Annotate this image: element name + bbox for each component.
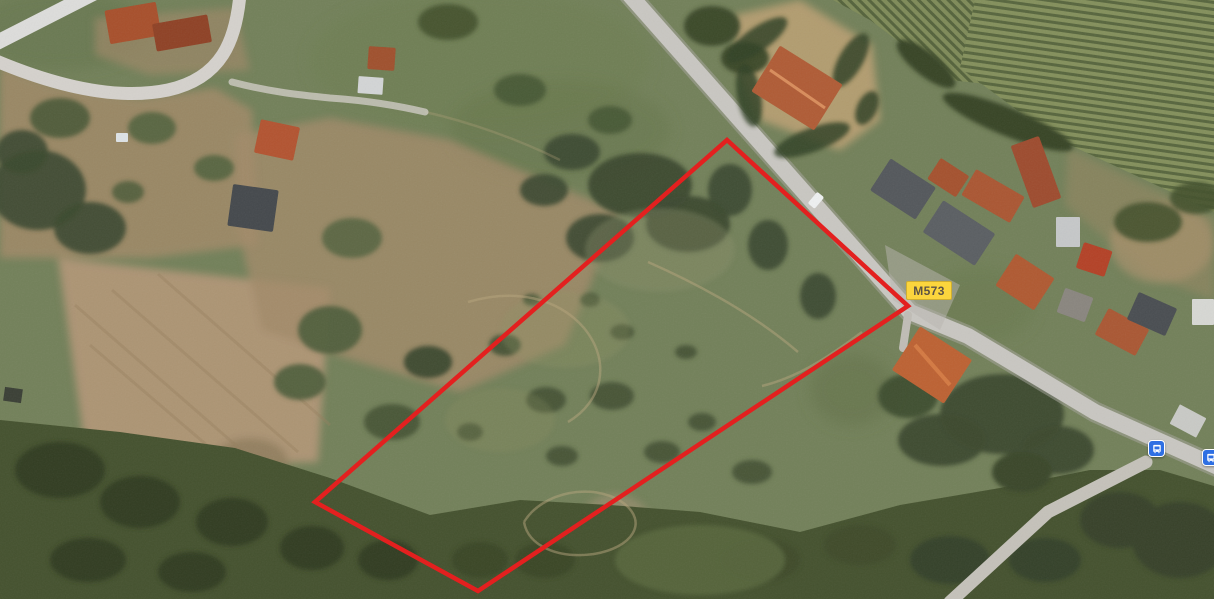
bus-icon [1206, 453, 1214, 463]
bus-icon [1152, 444, 1162, 454]
noise-overlay [0, 0, 1214, 599]
bus-stop-icon-2[interactable] [1202, 449, 1214, 466]
road-label-m573[interactable]: M573 [906, 281, 952, 300]
satellite-map[interactable] [0, 0, 1214, 599]
map-viewport[interactable]: M573 [0, 0, 1214, 599]
bus-stop-icon-1[interactable] [1148, 440, 1165, 457]
